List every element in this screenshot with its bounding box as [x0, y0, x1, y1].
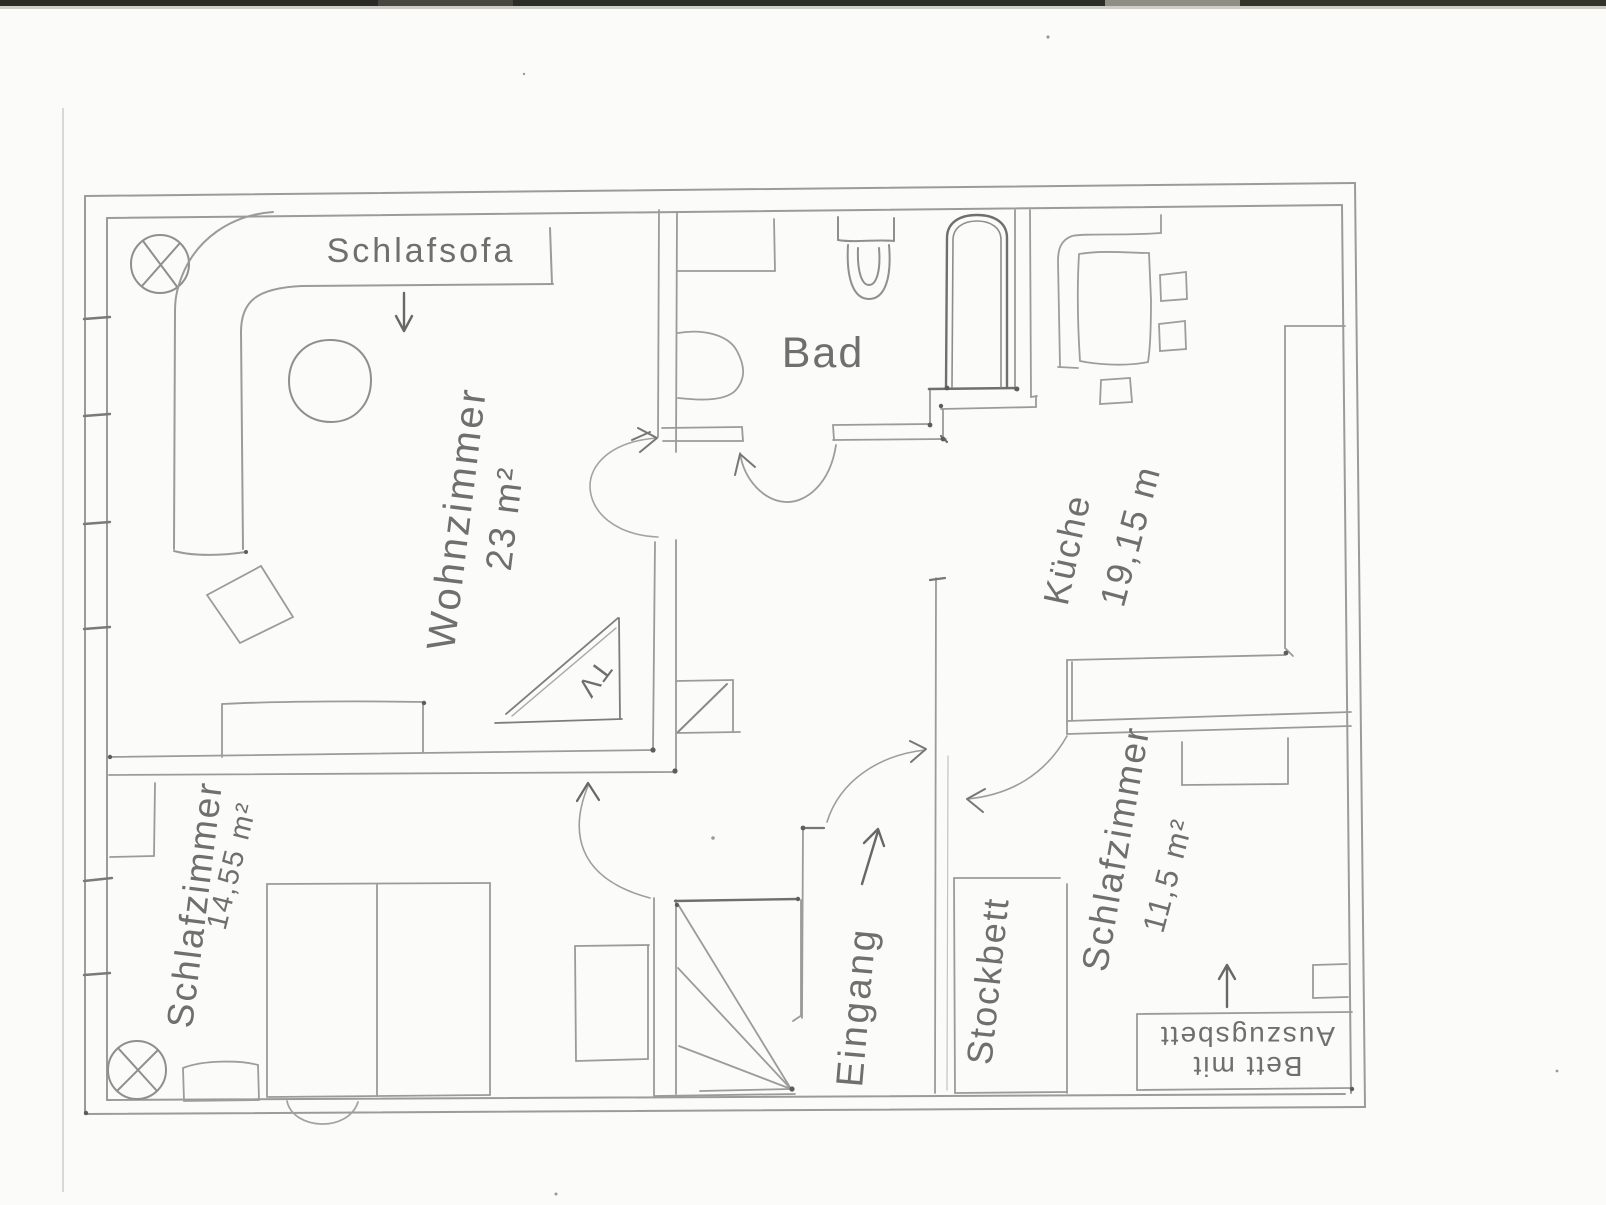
svg-text:Schlafsofa: Schlafsofa	[327, 232, 516, 270]
svg-text:Auszugsbett: Auszugsbett	[1159, 1021, 1335, 1052]
svg-text:Bett mit: Bett mit	[1192, 1051, 1303, 1082]
svg-text:Bad: Bad	[782, 329, 865, 377]
